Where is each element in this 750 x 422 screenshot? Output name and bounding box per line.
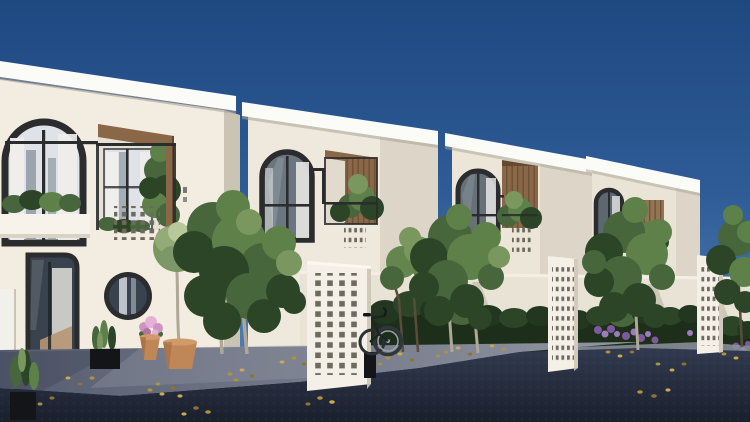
round-window bbox=[104, 272, 152, 320]
townhouse-render bbox=[0, 0, 750, 422]
bicycle-seat bbox=[363, 313, 371, 317]
screen-wall-2 bbox=[307, 261, 376, 391]
screen-wall-3 bbox=[548, 256, 578, 372]
perforation-grid-2 bbox=[344, 222, 366, 248]
screen-base-planter bbox=[364, 352, 376, 378]
house-1-planter-box-shade bbox=[0, 234, 90, 238]
house-3-balcony bbox=[497, 160, 542, 229]
screen-wall-3-perforations bbox=[552, 264, 574, 362]
balcony-railing bbox=[96, 143, 176, 146]
perforation-grid-3 bbox=[512, 228, 532, 252]
render-canvas bbox=[0, 0, 750, 422]
house-2-balcony bbox=[325, 150, 384, 224]
pillar-4-perforations bbox=[700, 262, 719, 346]
house-2-arch-window bbox=[262, 152, 312, 240]
perforation-grid-1 bbox=[114, 206, 160, 240]
screen-wall-2-perforations bbox=[313, 273, 361, 375]
